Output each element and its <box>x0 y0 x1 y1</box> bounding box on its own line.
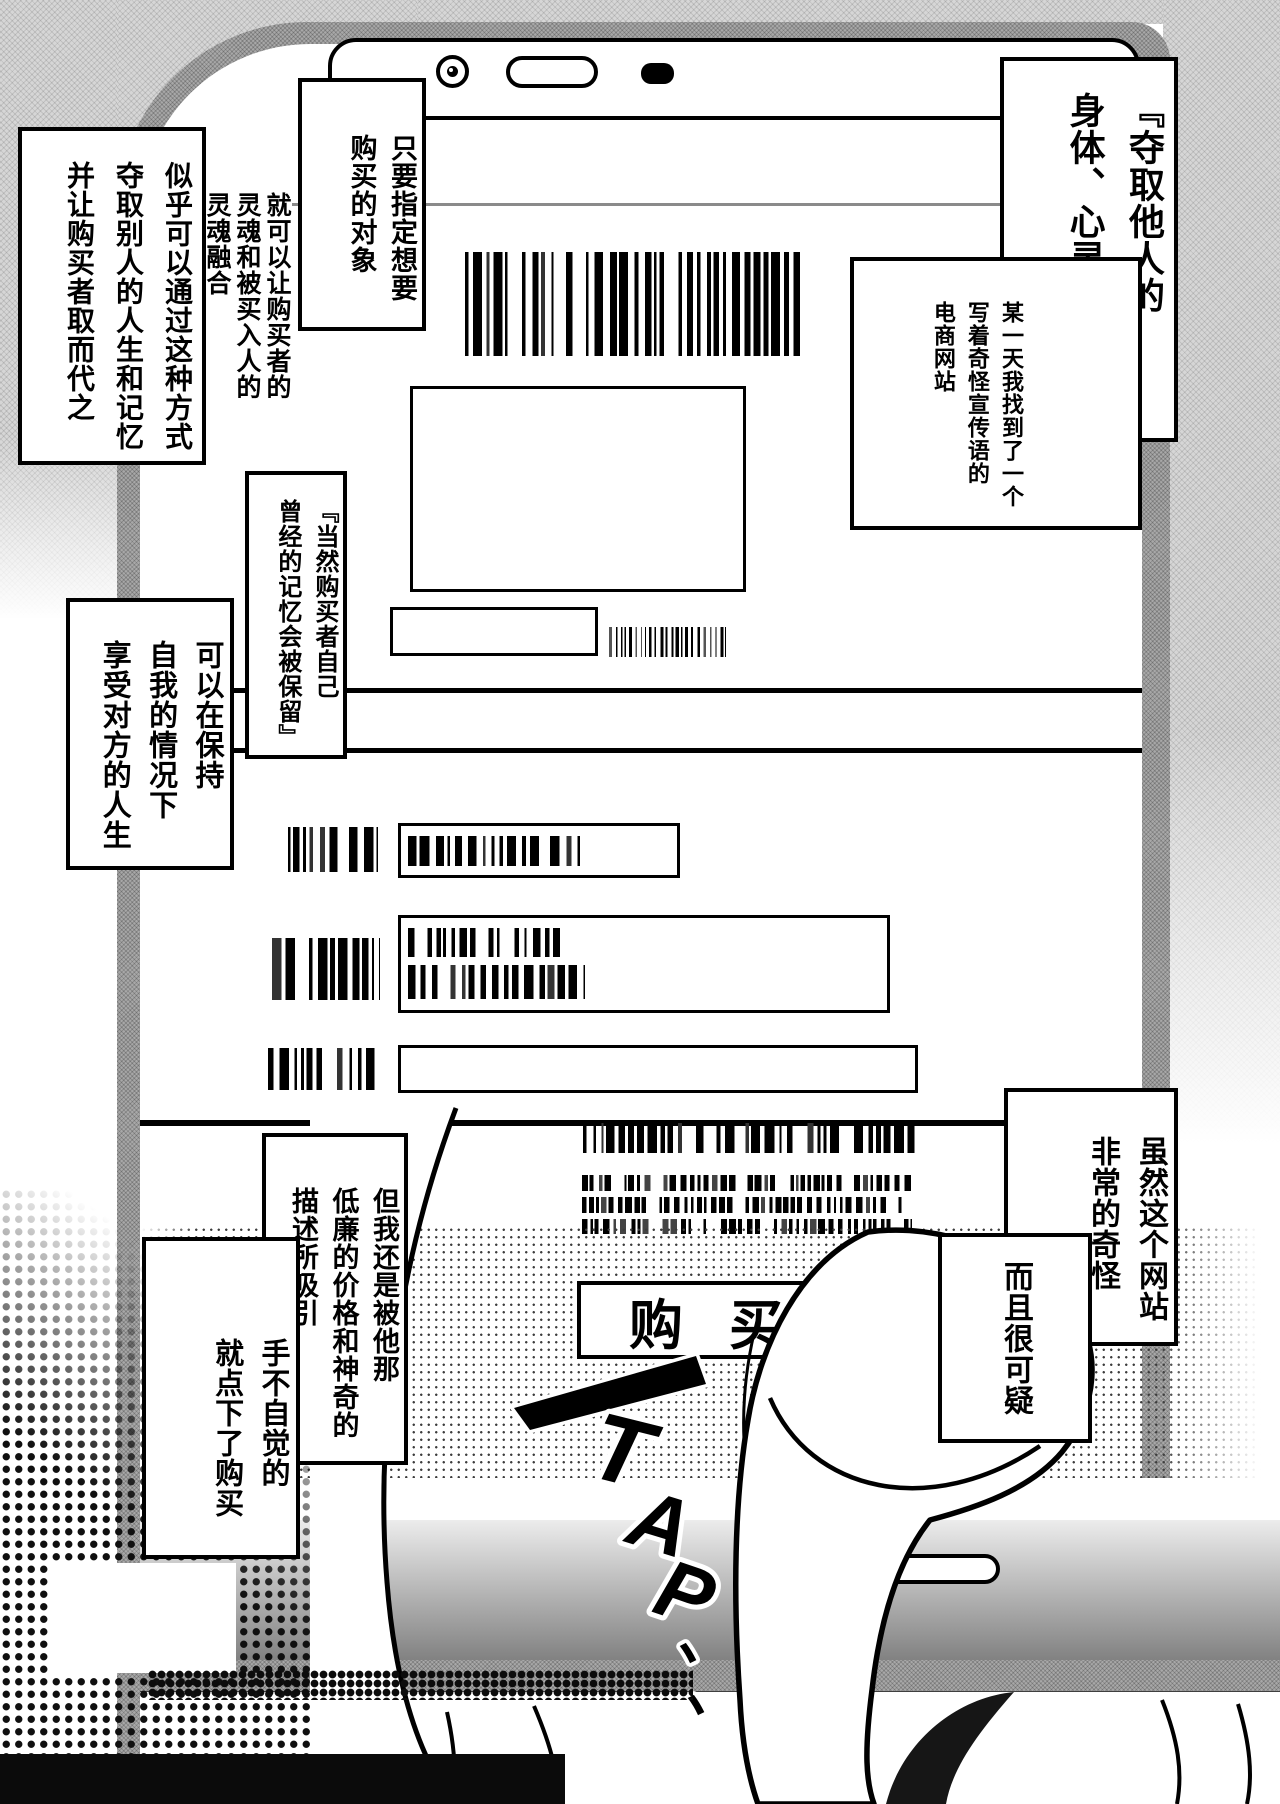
blank-caption-box <box>48 1563 236 1673</box>
barcode-graphic-row2b <box>408 965 585 999</box>
manga-page: 购买 T A P 、 、 『夺取他人的 身体、心灵和记忆』 某一天我找到了一个 … <box>0 0 1280 1804</box>
speaker-icon <box>506 56 598 88</box>
caption-found-site: 某一天我找到了一个 写着奇怪宣传语的 电商网站 <box>850 257 1142 530</box>
barcode-graphic-main <box>465 252 800 356</box>
bottom-black-band <box>0 1754 565 1804</box>
caption-suspicious: 而且很可疑 <box>938 1233 1092 1443</box>
camera-icon <box>436 55 469 88</box>
caption-memory-kept: 『当然购买者自己 曾经的记忆会被保留』 <box>245 471 347 759</box>
caption-specify-target: 只要指定想要 购买的对象 <box>298 78 426 331</box>
barcode-graphic-row1 <box>408 836 580 866</box>
caption-take-over: 似乎可以通过这种方式 夺取别人的人生和记忆 并让购买者取而代之 <box>18 127 206 465</box>
caption-enjoy-life: 可以在保持 自我的情况下 享受对方的人生 <box>66 598 234 870</box>
product-title-box <box>390 607 598 656</box>
barcode-label-row1 <box>288 827 378 872</box>
barcode-graphic-row2a <box>408 928 560 957</box>
background-tone-right <box>1163 0 1280 1180</box>
camera-glint <box>449 68 453 72</box>
sensor-icon <box>641 63 674 84</box>
product-image-box <box>410 386 746 592</box>
checker-strip <box>148 1670 693 1700</box>
caption-soul-merge: 就可以让购买者的 灵魂和被买入人的 灵魂融合 <box>198 183 292 409</box>
barcode-label-row2 <box>272 938 380 1000</box>
caption-tapped-buy: 手不自觉的 就点下了购买 <box>142 1237 300 1559</box>
barcode-graphic-price <box>609 627 726 657</box>
